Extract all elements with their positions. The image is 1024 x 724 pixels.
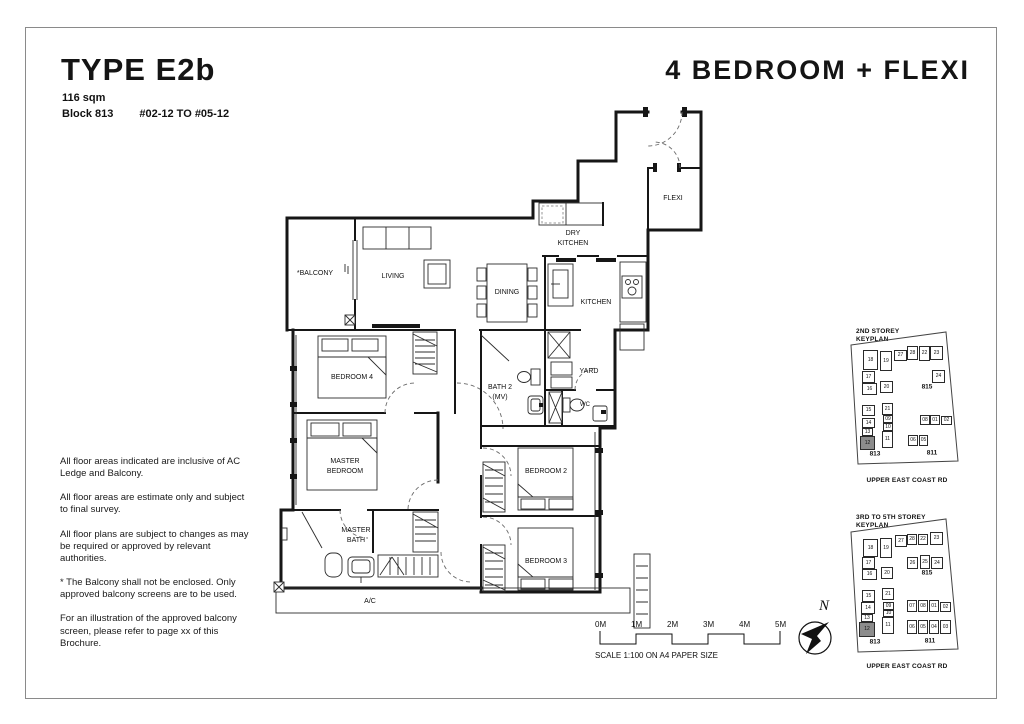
keyplan-unit-28: 28 [907,346,918,360]
keyplan-unit-14: 14 [862,418,875,428]
label-balcony: *BALCONY [297,270,334,277]
scale-bar: 0M 1M 2M 3M 4M 5M SCALE 1:100 ON A4 PAPE… [595,618,805,666]
wc-toilet [563,398,570,412]
wardrobe-bed4 [413,332,437,374]
keyplan-unit-25: 25 [920,555,930,569]
block-number: Block 813 [62,108,113,120]
keyplan-unit-17: 17 [862,557,875,569]
keyplan-unit-10: 10 [883,423,893,431]
svg-text:2M: 2M [667,620,678,629]
label-yard: YARD [580,368,599,375]
north-label: N [818,598,830,614]
north-arrow [801,622,829,654]
keyplan-unit-15: 15 [862,590,875,602]
keyplan-road-label: UPPER EAST COAST RD [848,477,966,484]
master-wardrobe-1 [413,512,438,552]
keyplan-block-815: 815 [922,570,933,577]
page-title: TYPE E2b [61,52,215,88]
label-master-bedroom: MASTER [330,458,359,465]
bath2-toilet [531,369,540,385]
svg-text:BATH: BATH [347,537,365,544]
label-ac: A/C [364,598,376,605]
masterbath-toilet [325,553,342,577]
keyplan-block-811: 811 [927,450,938,457]
label-living: LIVING [382,273,405,280]
keyplan-unit-01: 01 [930,415,940,425]
keyplan-unit-24: 24 [931,557,943,569]
label-bedroom4: BEDROOM 4 [331,374,373,381]
keyplan-unit-03: 03 [940,620,951,634]
keyplan-unit-07: 07 [907,600,917,612]
keyplan-unit-11: 11 [882,431,893,448]
keyplan-unit-11: 11 [882,617,894,634]
keyplan-unit-10: 10 [883,610,894,617]
keyplan-unit-21: 21 [882,403,893,415]
keyplan-unit-28: 28 [907,534,917,545]
keyplan-unit-02: 02 [940,602,951,612]
master-bed [307,420,377,490]
keyplan-unit-16: 16 [862,383,877,395]
keyplan-unit-05: 05 [919,435,928,446]
label-dining: DINING [495,289,520,296]
entry-door-arc [648,112,682,146]
keyplan-unit-23: 23 [930,532,943,545]
keyplan-unit-22: 22 [918,534,928,545]
label-bath2: BATH 2 [488,384,512,391]
master-door-arc [408,480,438,510]
keyplan-block-813: 813 [870,639,881,646]
svg-text:(MV): (MV) [492,394,507,401]
keyplan-unit-18: 18 [863,350,878,370]
keyplan-unit-20: 20 [880,381,893,393]
keyplan-unit-24: 24 [932,370,945,383]
keyplan-unit-12: 12 [859,622,875,637]
keyplan-unit-09: 09 [883,602,894,610]
keyplan-block-811: 811 [925,638,936,645]
svg-text:1M: 1M [631,620,642,629]
svg-text:4M: 4M [739,620,750,629]
sofa [363,227,431,249]
keyplan-unit-06: 06 [907,620,917,634]
bedroom4-door-arc [385,383,415,413]
keyplan-unit-09: 09 [883,415,893,423]
keyplan-unit-17: 17 [862,371,875,383]
scale-tick: 0M [595,620,606,629]
floor-plan: *BALCONY LIVING DINING DRY KITCHEN KITCH… [268,96,736,640]
outer-walls [287,112,701,592]
keyplan-unit-08: 08 [918,600,928,612]
keyplan-unit-27: 27 [894,350,907,361]
keyplan-unit-22: 22 [919,346,930,361]
unit-category-title: 4 BEDROOM + FLEXI [665,55,970,86]
keyplan-2nd-storey: 2ND STOREY KEYPLAN 181927282223172416201… [848,326,966,486]
keyplan-unit-13: 13 [861,614,873,622]
keyplan-road-label: UPPER EAST COAST RD [848,663,966,670]
label-bedroom2: BEDROOM 2 [525,468,567,475]
label-wc: WC [580,402,591,408]
keyplan-units: 1819272822231724162015211409100801021312… [848,326,966,486]
disclaimer-line: For an illustration of the approved balc… [60,613,250,649]
svg-text:KITCHEN: KITCHEN [558,240,589,247]
disclaimer-line: All floor areas are estimate only and su… [60,492,250,516]
keyplan-unit-27: 27 [895,535,907,547]
svg-text:5M: 5M [775,620,786,629]
tv-console [372,324,420,328]
keyplan-unit-23: 23 [930,346,943,360]
keyplan-unit-20: 20 [881,567,893,579]
keyplan-unit-13: 13 [862,428,873,436]
keyplan-unit-05: 05 [918,620,928,634]
disclaimer-line: All floor areas indicated are inclusive … [60,456,250,480]
keyplan-block-813: 813 [870,451,881,458]
keyplan-unit-02: 02 [941,416,952,425]
keyplan-3rd-5th-storey: 3RD TO 5TH STOREY KEYPLAN 18192728222317… [848,512,966,672]
label-kitchen: KITCHEN [581,299,612,306]
master-wardrobe-2 [378,555,438,577]
flexi-door-arc [654,142,680,168]
scale-caption: SCALE 1:100 ON A4 PAPER SIZE [595,651,718,660]
label-master-bath: MASTER [341,527,370,534]
disclaimer-line: * The Balcony shall not be enclosed. Onl… [60,577,250,601]
keyplan-unit-19: 19 [880,538,892,558]
svg-text:3M: 3M [703,620,714,629]
label-dry-kitchen: DRY [566,230,581,237]
label-flexi: FLEXI [663,195,683,202]
keyplan-unit-06: 06 [908,435,918,446]
keyplan-block-815: 815 [922,384,933,391]
keyplan-unit-12: 12 [860,436,875,450]
north-compass: N [793,594,845,664]
keyplan-unit-18: 18 [863,539,878,557]
label-bedroom3: BEDROOM 3 [525,558,567,565]
keyplan-unit-21: 21 [882,588,894,600]
keyplan-unit-01: 01 [929,600,939,612]
unit-area: 116 sqm [62,92,105,104]
bed2 [518,448,573,510]
svg-text:BEDROOM: BEDROOM [327,468,363,475]
keyplan-unit-14: 14 [861,602,875,614]
dressing-door-arc [441,552,471,582]
washer [551,362,572,375]
keyplan-unit-08: 08 [920,415,930,425]
keyplan-unit-15: 15 [862,405,875,416]
unit-range: #02-12 TO #05-12 [139,108,229,120]
keyplan-unit-26: 26 [907,557,918,569]
keyplan-unit-19: 19 [880,351,892,371]
disclaimer-line: All floor plans are subject to changes a… [60,529,250,565]
bedroom3-door-arc [483,517,511,545]
keyplan-unit-16: 16 [862,569,877,580]
ac-ledge-side [634,554,650,628]
block-info: Block 813#02-12 TO #05-12 [62,108,229,120]
disclaimer-notes: All floor areas indicated are inclusive … [60,456,250,662]
keyplan-units: 1819272822231726252416201521140910070801… [848,512,966,672]
keyplan-unit-04: 04 [929,620,939,634]
